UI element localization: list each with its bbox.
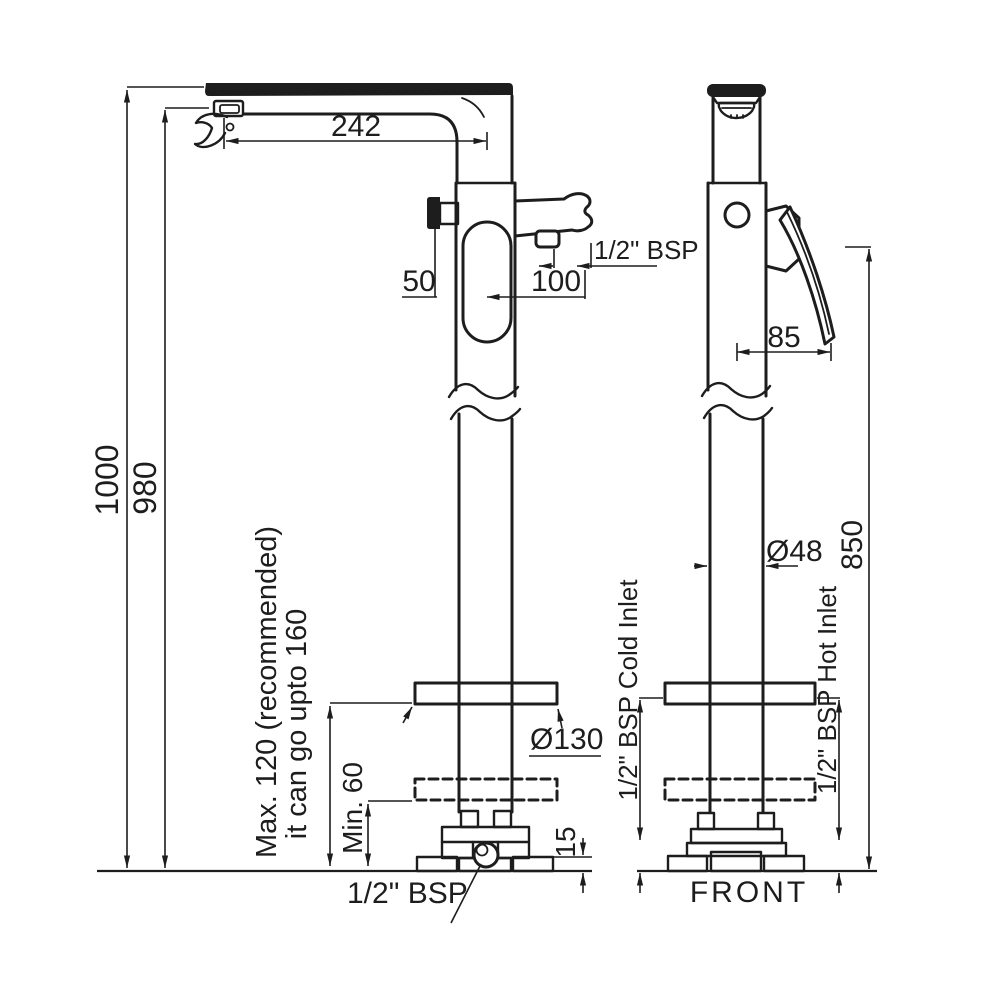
pipe-break-upper [702, 383, 770, 397]
knob-cap [427, 197, 440, 229]
diverter-knob-front [725, 203, 749, 227]
base-step-2 [687, 843, 786, 856]
spout-cap [707, 84, 766, 97]
stream-dot [227, 124, 234, 131]
upper-flange [415, 683, 557, 704]
dim-spout-height: 980 [127, 461, 163, 514]
base-front [668, 813, 804, 871]
dim-pipe-diameter: Ø48 [766, 535, 823, 568]
note-max-adjust-line1: Max. 120 (recommended) [251, 526, 283, 858]
dim-handle-length: 85 [767, 321, 800, 354]
dim-knob-offset: 50 [402, 265, 435, 298]
base-foot [668, 856, 707, 871]
base-tab [698, 813, 714, 829]
label-cold-inlet: 1/2" BSP Cold Inlet [613, 579, 643, 801]
label-front-view: FRONT [690, 876, 808, 909]
base-foot [764, 856, 804, 871]
dim-130-arrow-left [403, 707, 412, 723]
diverter-knob [427, 197, 458, 229]
water-stream-icon [195, 114, 227, 147]
dim-flange-diameter: Ø130 [530, 723, 603, 756]
base-tab [494, 811, 511, 827]
spout-corner-arc [462, 98, 484, 117]
handshower-holder [515, 194, 592, 247]
note-max-adjust-line2: it can go upto 160 [281, 609, 313, 840]
floor-cover-flange-front [665, 779, 815, 800]
pipe-break-lower [451, 406, 520, 420]
lever-escutcheon [463, 222, 511, 342]
front-view: 85 850 Ø48 1/2" BSP Cold Inlet 1/2" BSP … [613, 84, 877, 909]
side-view: 1000 980 242 50 100 1/2" BSP Max. 120 (r… [89, 83, 699, 923]
pipe-break-lower [704, 405, 772, 419]
base-tab [461, 811, 478, 827]
dim-hose-offset: 100 [531, 265, 581, 298]
label-base-thread: 1/2" BSP [347, 877, 468, 910]
label-hot-inlet: 1/2" BSP Hot Inlet [812, 585, 842, 794]
upper-flange-front [665, 683, 815, 704]
base-tab [758, 813, 774, 829]
label-hose-thread: 1/2" BSP [594, 235, 699, 265]
base-step-1 [691, 829, 782, 843]
dimensions-side: 1000 980 242 50 100 1/2" BSP Max. 120 (r… [89, 87, 699, 910]
dim-handle-height: 850 [836, 520, 869, 570]
bath-mixer-dimension-drawing: 1000 980 242 50 100 1/2" BSP Max. 120 (r… [0, 0, 1000, 1000]
technical-drawing-page: 1000 980 242 50 100 1/2" BSP Max. 120 (r… [0, 0, 1000, 1000]
dim-base-height: 15 [550, 826, 581, 857]
body-and-pipe-front [702, 183, 772, 812]
spout-top-bar [205, 83, 513, 96]
floor-cover-flange [415, 779, 557, 800]
note-min-adjust: Min. 60 [337, 762, 368, 854]
holder-clamp [536, 231, 559, 247]
dimensions-front: 85 850 Ø48 1/2" BSP Cold Inlet 1/2" BSP … [613, 247, 871, 909]
dim-overall-height: 1000 [89, 444, 125, 515]
dim-spout-reach: 242 [331, 110, 381, 143]
aerator-inner [220, 105, 239, 113]
body-and-pipe [449, 183, 520, 812]
spout-head-front [707, 84, 766, 183]
pipe-break-upper [449, 384, 518, 398]
